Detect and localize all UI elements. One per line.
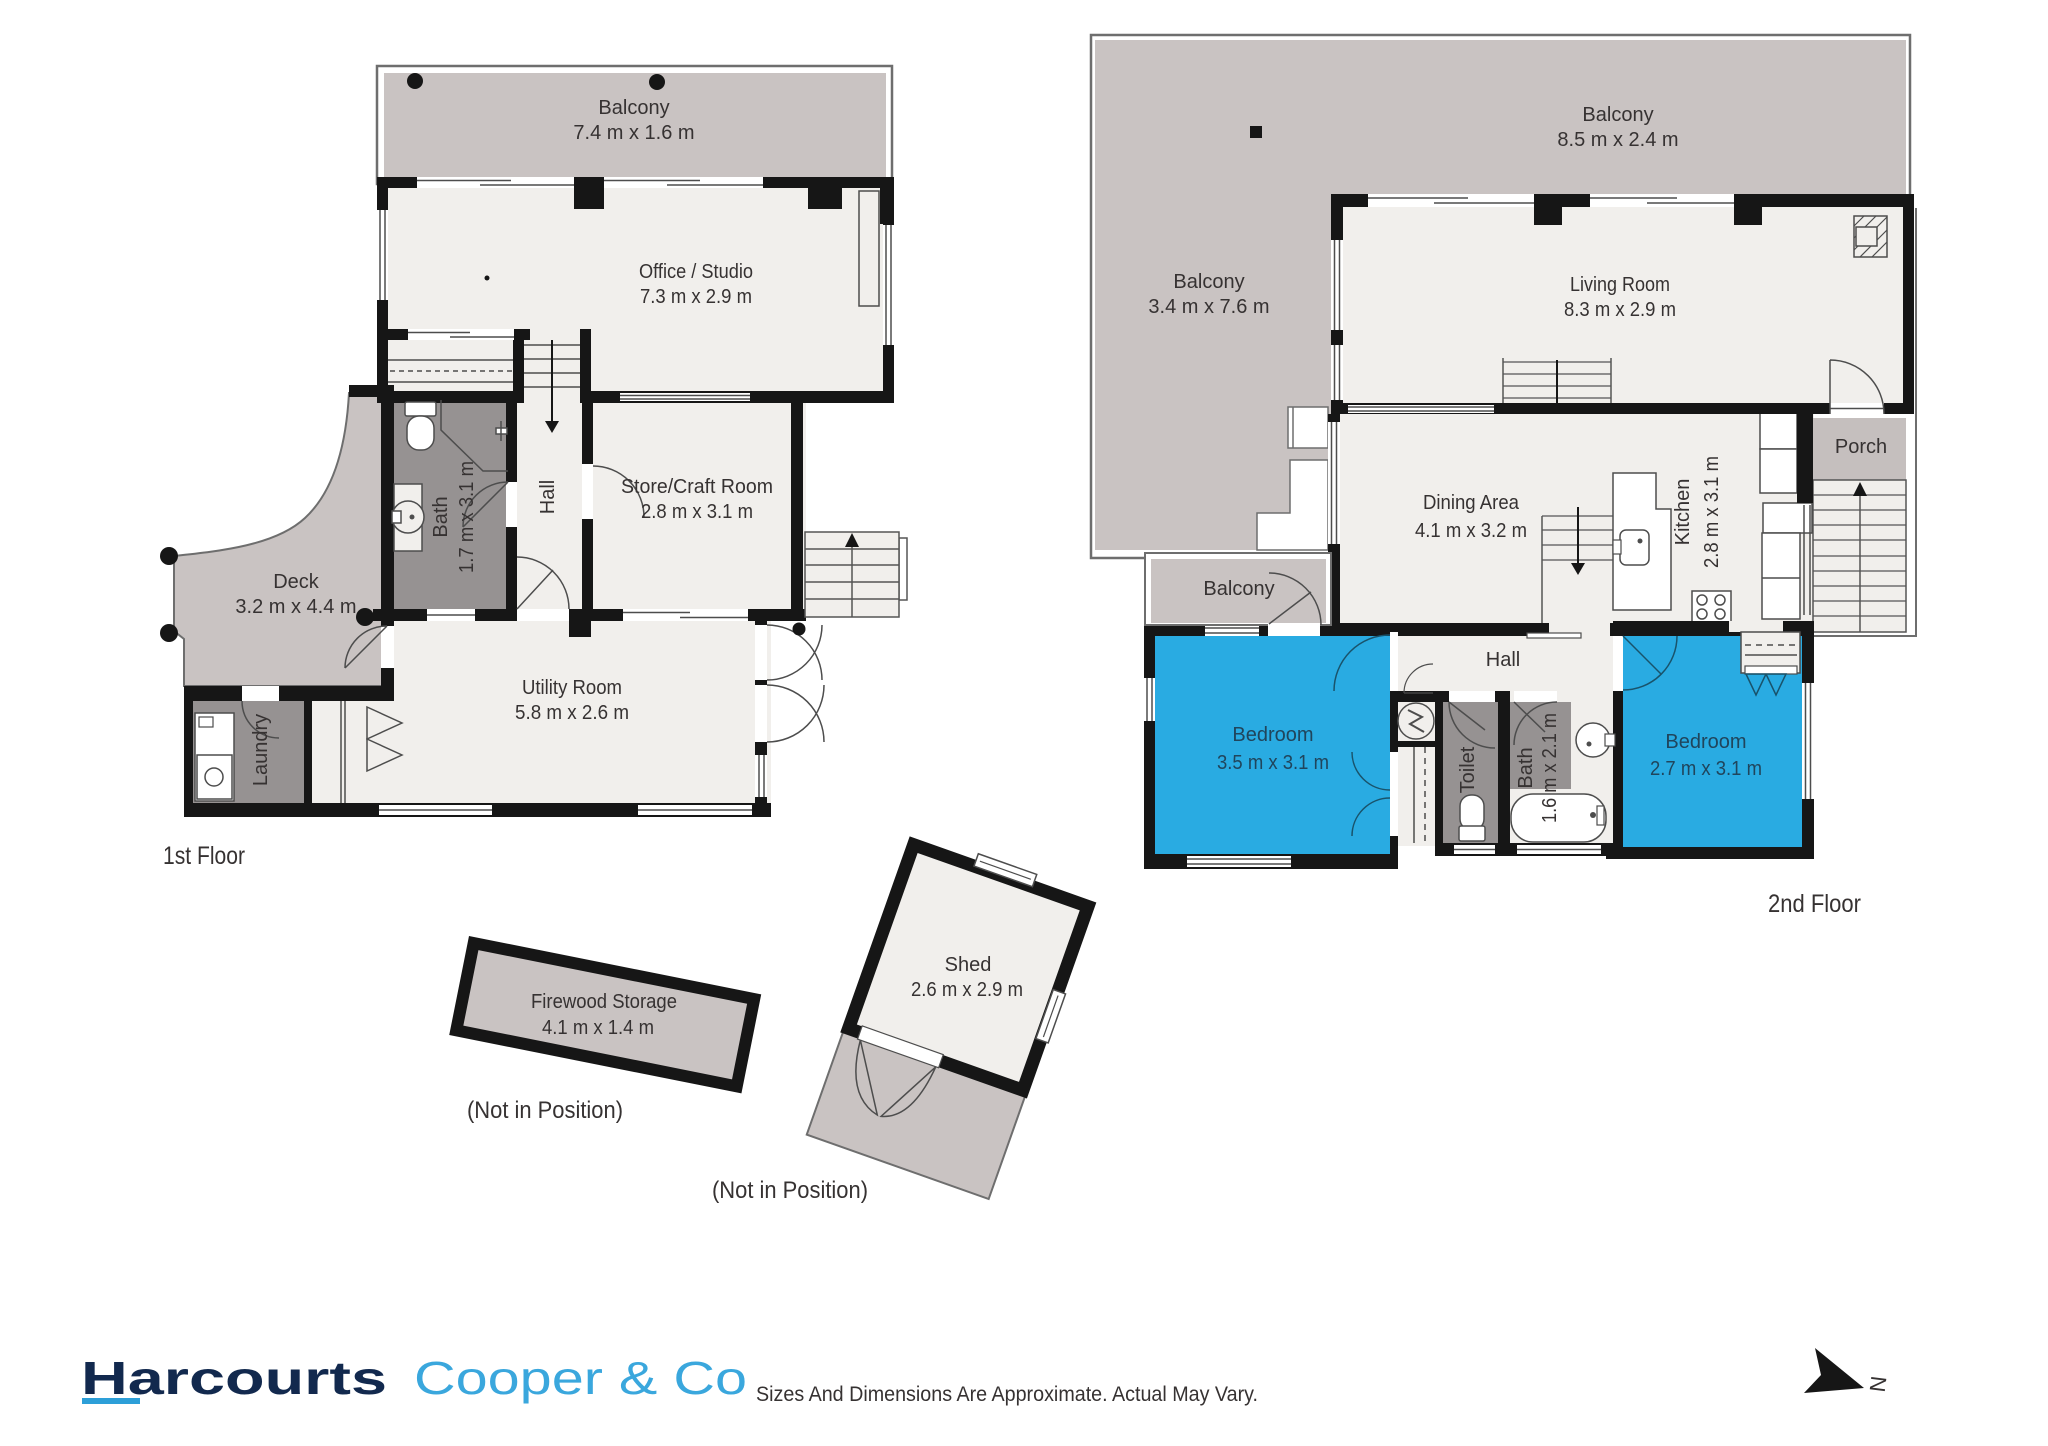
svg-text:Sizes And Dimensions Are Appro: Sizes And Dimensions Are Approximate. Ac… (756, 1383, 1258, 1406)
svg-text:N: N (1865, 1375, 1892, 1394)
svg-text:Balcony: Balcony (1203, 578, 1274, 600)
svg-text:Balcony: Balcony (1582, 104, 1653, 126)
svg-text:Bedroom: Bedroom (1232, 724, 1313, 746)
svg-text:Store/Craft Room: Store/Craft Room (621, 476, 773, 498)
svg-text:Balcony: Balcony (598, 97, 669, 119)
svg-text:Kitchen: Kitchen (1672, 479, 1694, 546)
svg-text:3.4 m x 7.6 m: 3.4 m x 7.6 m (1148, 296, 1269, 318)
svg-text:Hall: Hall (537, 480, 559, 514)
svg-text:1st Floor: 1st Floor (163, 842, 245, 870)
svg-text:2.6 m x 2.9 m: 2.6 m x 2.9 m (911, 979, 1023, 1001)
svg-text:2.8 m x 3.1 m: 2.8 m x 3.1 m (641, 501, 753, 523)
svg-text:(Not in Position): (Not in Position) (467, 1097, 623, 1124)
svg-text:7.4 m x 1.6 m: 7.4 m x 1.6 m (573, 122, 694, 144)
svg-text:4.1 m x 3.2 m: 4.1 m x 3.2 m (1415, 520, 1527, 542)
svg-text:Harcourts: Harcourts (81, 1352, 387, 1404)
svg-text:Firewood Storage: Firewood Storage (531, 991, 677, 1013)
svg-text:1.6 m x 2.1 m: 1.6 m x 2.1 m (1539, 713, 1561, 823)
svg-text:Shed: Shed (945, 954, 992, 976)
svg-text:Living Room: Living Room (1570, 274, 1670, 296)
svg-text:Toilet: Toilet (1457, 746, 1479, 793)
svg-text:Balcony: Balcony (1173, 271, 1244, 293)
svg-text:5.8 m x 2.6 m: 5.8 m x 2.6 m (515, 702, 629, 724)
svg-text:8.3 m x 2.9 m: 8.3 m x 2.9 m (1564, 299, 1676, 321)
svg-text:Office / Studio: Office / Studio (639, 261, 753, 283)
svg-text:Bath: Bath (430, 496, 452, 537)
svg-text:Utility Room: Utility Room (522, 677, 622, 699)
svg-text:Porch: Porch (1835, 436, 1887, 458)
svg-text:1.7 m x 3.1 m: 1.7 m x 3.1 m (456, 461, 478, 573)
svg-text:Dining Area: Dining Area (1423, 492, 1520, 514)
svg-text:3.5 m x 3.1 m: 3.5 m x 3.1 m (1217, 752, 1329, 774)
svg-text:Cooper & Co: Cooper & Co (414, 1352, 747, 1404)
svg-text:Deck: Deck (273, 571, 320, 593)
svg-text:2nd Floor: 2nd Floor (1768, 890, 1861, 918)
svg-text:2.8 m x 3.1 m: 2.8 m x 3.1 m (1701, 456, 1723, 568)
svg-text:Bath: Bath (1515, 747, 1537, 788)
svg-text:4.1 m x 1.4 m: 4.1 m x 1.4 m (542, 1017, 654, 1039)
svg-text:Laundry: Laundry (250, 714, 272, 786)
svg-text:(Not in Position): (Not in Position) (712, 1177, 868, 1204)
svg-text:Bedroom: Bedroom (1665, 731, 1746, 753)
svg-text:3.2 m x 4.4 m: 3.2 m x 4.4 m (235, 596, 356, 618)
svg-text:2.7 m x 3.1 m: 2.7 m x 3.1 m (1650, 758, 1762, 780)
svg-text:7.3 m x 2.9 m: 7.3 m x 2.9 m (640, 286, 752, 308)
svg-text:8.5 m x 2.4 m: 8.5 m x 2.4 m (1557, 129, 1678, 151)
svg-text:Hall: Hall (1486, 649, 1520, 671)
